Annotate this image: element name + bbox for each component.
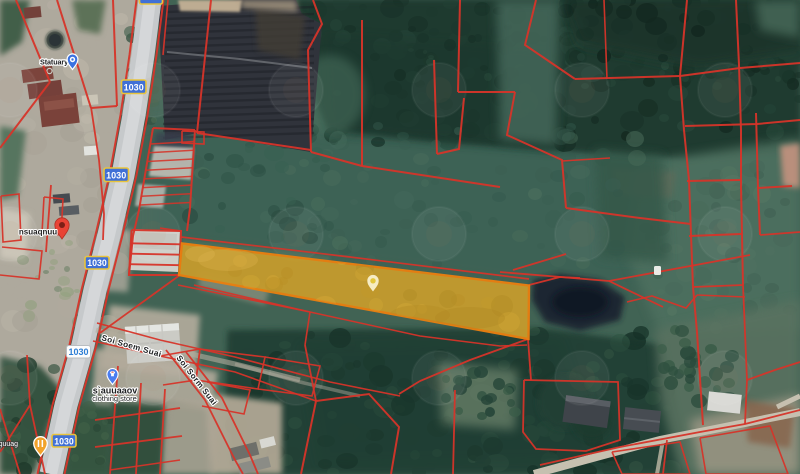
svg-text:1030: 1030 — [68, 347, 88, 357]
svg-text:1030: 1030 — [106, 170, 126, 180]
svg-text:clothing store: clothing store — [92, 394, 137, 403]
svg-text:Statuary: Statuary — [40, 58, 68, 67]
svg-text:1030: 1030 — [87, 258, 107, 268]
svg-text:1030: 1030 — [54, 436, 74, 446]
svg-text:lsiquuag: lsiquuag — [0, 441, 18, 448]
svg-text:nsuaqnuu: nsuaqnuu — [19, 228, 57, 237]
svg-text:1030: 1030 — [124, 82, 144, 92]
